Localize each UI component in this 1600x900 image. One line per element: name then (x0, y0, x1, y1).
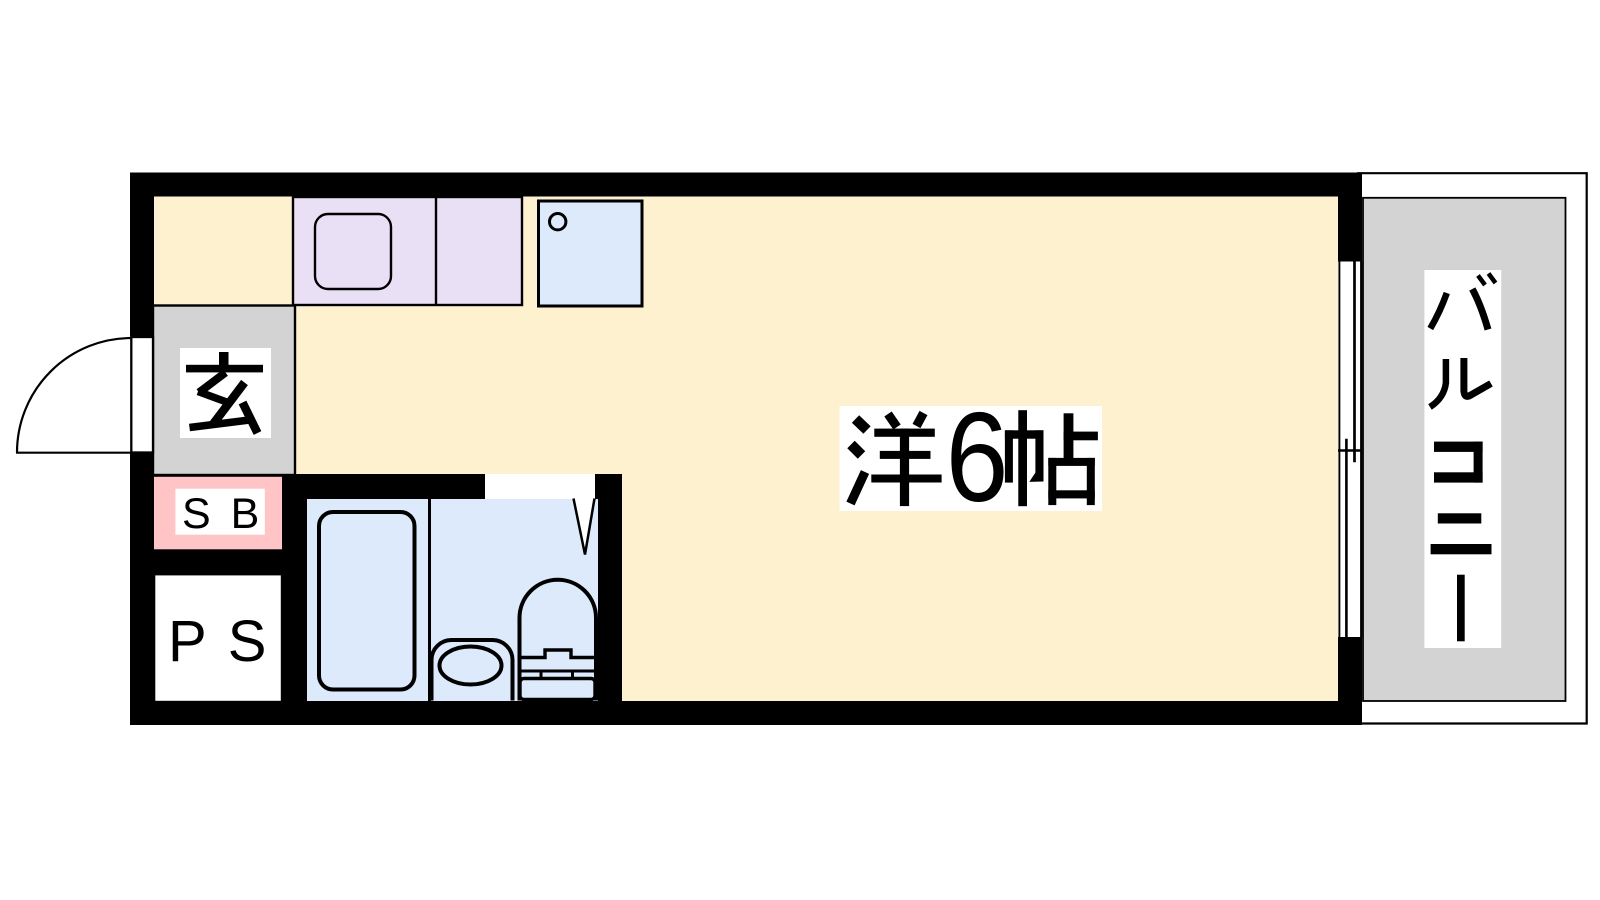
svg-text:P S: P S (168, 609, 269, 674)
svg-text:S B: S B (182, 490, 263, 538)
svg-text:6: 6 (946, 387, 1009, 529)
